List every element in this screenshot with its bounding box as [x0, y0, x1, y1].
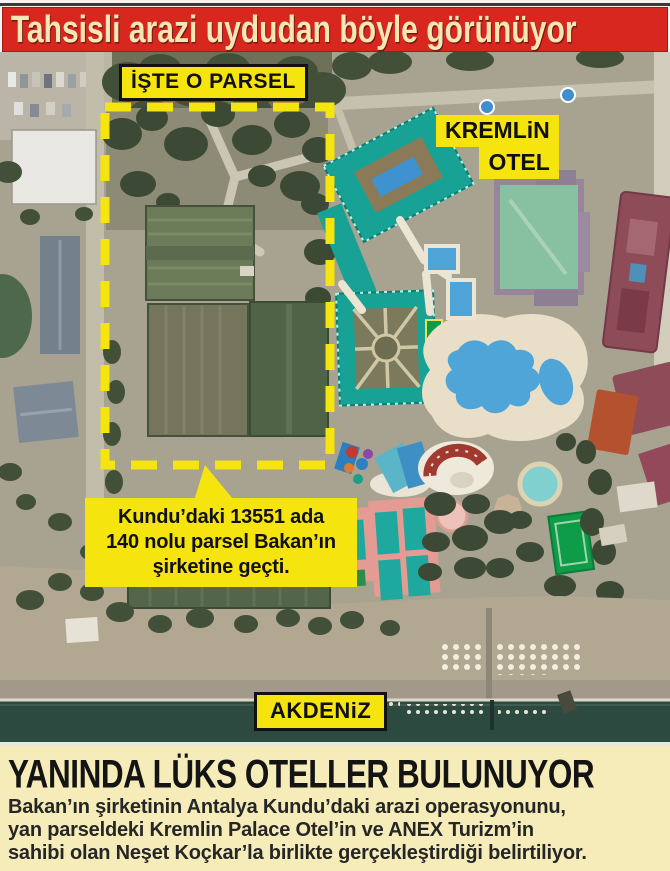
parcel-label: İŞTE O PARSEL [119, 64, 308, 101]
news-graphic: { "banner": { "title": "Tahsisli arazi u… [0, 0, 670, 871]
banner-top-rule [0, 3, 670, 6]
hotel-building-south [336, 290, 437, 405]
hotel-label-line1: KREMLiN [436, 115, 559, 147]
satellite-art [0, 52, 670, 742]
hotel-label-line2: OTEL [479, 147, 558, 179]
satellite-image: İŞTE O PARSEL KREMLiN OTEL Kundu’daki 13… [0, 52, 670, 742]
amphitheater [418, 441, 494, 495]
top-banner: Tahsisli arazi uydudan böyle görünüyor [0, 0, 670, 52]
banner-title: Tahsisli arazi uydudan böyle görünüyor [2, 8, 577, 52]
footer-panel: YANINDA LÜKS OTELLER BULUNUYOR Bakan’ın … [0, 746, 670, 871]
callout-line: şirketine geçti. [87, 555, 355, 580]
footer-body-line: sahibi olan Neşet Koçkar’la birlikte ger… [8, 842, 662, 865]
green-roof-building [497, 170, 590, 306]
footer-body: Bakan’ın şirketinin Antalya Kundu’daki a… [8, 796, 662, 865]
round-pool [520, 464, 560, 504]
banner-red-bar: Tahsisli arazi uydudan böyle görünüyor [2, 7, 668, 52]
pier [402, 704, 486, 718]
sea-label: AKDENiZ [254, 692, 387, 731]
footer-body-line: Bakan’ın şirketinin Antalya Kundu’daki a… [8, 796, 662, 819]
beach-umbrellas [437, 643, 483, 673]
footer-headline: YANINDA LÜKS OTELLER BULUNUYOR [8, 752, 597, 798]
hotel-label: KREMLiN OTEL [436, 115, 559, 179]
callout-line: 140 nolu parsel Bakan’ın [87, 530, 355, 555]
footer-body-line: yan parseldeki Kremlin Palace Otel’in ve… [8, 819, 662, 842]
main-pool [446, 340, 540, 413]
parcel-callout: Kundu’daki 13551 ada 140 nolu parsel Bak… [85, 498, 357, 587]
callout-line: Kundu’daki 13551 ada [87, 505, 355, 530]
